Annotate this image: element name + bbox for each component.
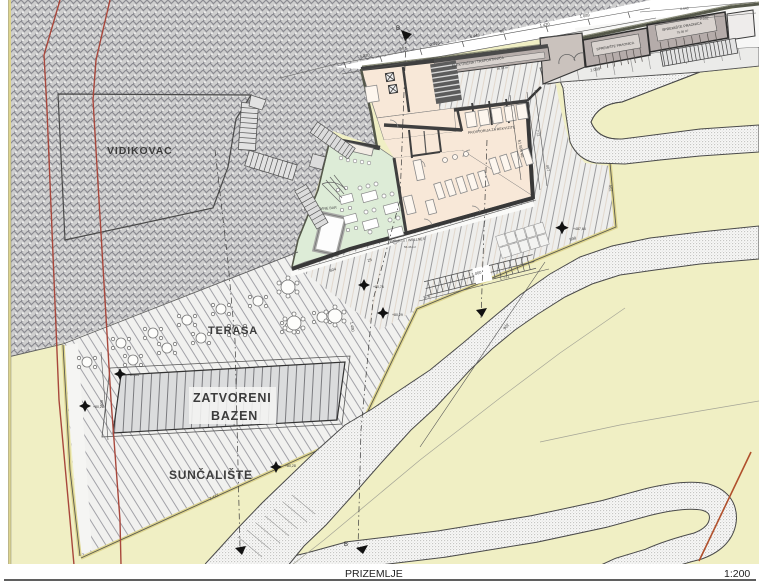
svg-text:908: 908 <box>99 400 105 408</box>
svg-text:+80,29: +80,29 <box>392 313 403 317</box>
svg-text:SUNČALIŠTE: SUNČALIŠTE <box>169 467 253 482</box>
svg-text:VIDIKOVAC: VIDIKOVAC <box>107 145 173 157</box>
svg-text:1:200: 1:200 <box>724 568 750 580</box>
svg-text:B: B <box>344 542 348 548</box>
svg-text:ZATVORENI: ZATVORENI <box>193 391 272 405</box>
svg-text:56.46 m²: 56.46 m² <box>404 245 416 249</box>
svg-text:+81,64: +81,64 <box>128 373 139 377</box>
svg-text:2.092: 2.092 <box>700 16 709 21</box>
svg-text:+80,28: +80,28 <box>285 464 296 468</box>
svg-text:4.443: 4.443 <box>680 6 689 11</box>
svg-text:TERASA: TERASA <box>208 325 258 337</box>
svg-text:PRIZEMLJE: PRIZEMLJE <box>345 568 403 580</box>
svg-text:+487,64: +487,64 <box>573 227 586 231</box>
svg-text:BAZEN: BAZEN <box>211 409 258 423</box>
svg-text:+80,76: +80,76 <box>373 285 384 289</box>
svg-text:B: B <box>396 26 400 32</box>
